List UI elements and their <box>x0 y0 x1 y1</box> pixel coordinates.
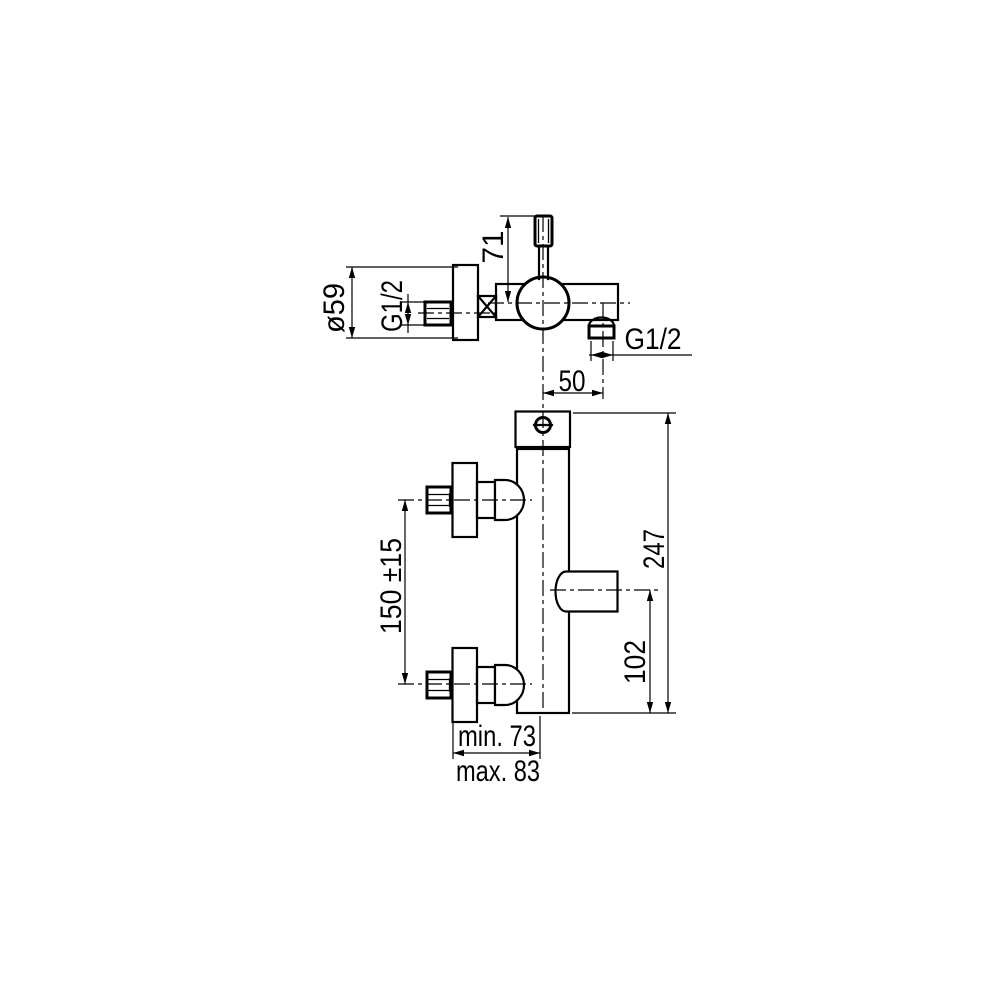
faucet-technical-drawing: ø59 G1/2 71 G1/2 <box>0 0 1000 1000</box>
dim-connection-spacing: 150 ±15 <box>375 500 408 684</box>
spout-front <box>556 572 618 612</box>
dim-label-spout-height: 102 <box>619 640 652 684</box>
lower-nut <box>427 672 451 698</box>
dim-label-depth-max: max. 83 <box>456 755 540 788</box>
dim-label-connection-spacing: 150 ±15 <box>375 538 408 634</box>
dim-depth-range: min. 73 max. 83 <box>453 716 540 788</box>
dim-label-spout-thread: G1/2 <box>625 323 682 356</box>
dim-label-spout-offset: 50 <box>559 365 586 398</box>
side-view <box>425 216 618 340</box>
dim-spout-thread: G1/2 <box>589 323 692 361</box>
dim-inlet-thread: G1/2 <box>376 280 426 333</box>
front-view <box>427 412 618 723</box>
drawing-canvas: ø59 G1/2 71 G1/2 <box>0 0 1000 1000</box>
eccentric-union <box>478 296 496 317</box>
dim-label-lever-height: 71 <box>477 231 510 264</box>
lower-flange <box>453 648 478 722</box>
dim-spout-offset: 50 <box>543 365 603 398</box>
dim-label-overall-height: 247 <box>638 529 671 569</box>
lower-dome <box>495 665 524 705</box>
lower-connector <box>477 667 495 703</box>
dim-label-inlet-thread: G1/2 <box>376 280 409 332</box>
dim-label-depth-min: min. 73 <box>458 720 536 753</box>
dim-spout-height: 102 <box>619 590 653 713</box>
wall-plate-side <box>453 265 478 340</box>
lower-connection <box>427 648 524 722</box>
dim-label-plate-diameter: ø59 <box>318 283 351 333</box>
